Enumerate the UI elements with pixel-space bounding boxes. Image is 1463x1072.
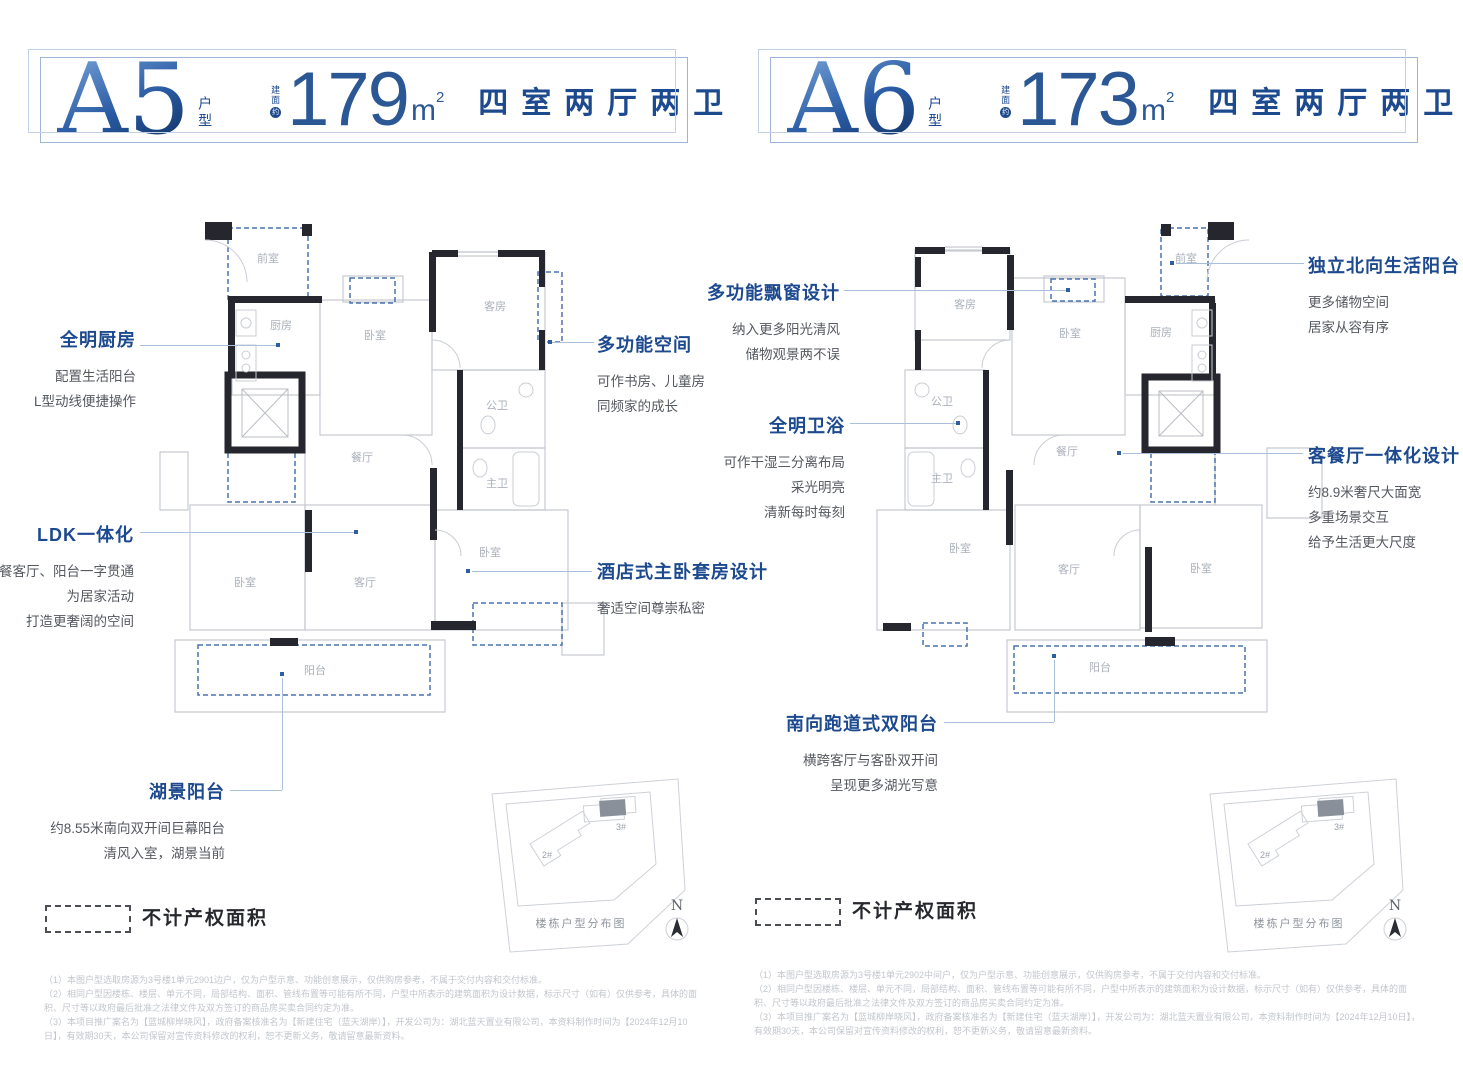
leader-dot — [1117, 451, 1121, 455]
unit-a5-name: A5 — [57, 56, 190, 144]
room-label-bedroom-top: 卧室 — [1059, 326, 1081, 340]
disclaimer-line: （3）本项目推广案名为【蓝城柳岸晓风】，政府备案核准名为【新建住宅（蓝天湖岸）】… — [44, 1015, 710, 1043]
site-map-a5: 2# 3# 楼栋户型分布图 N — [478, 772, 718, 962]
callout-desc: 约8.55米南向双开间巨幕阳台 清风入室，湖景当前 — [50, 816, 225, 866]
leader-line — [140, 532, 354, 533]
area-prefix-text: 建面 — [999, 85, 1012, 105]
area-approx-mark: 约 — [270, 107, 281, 118]
callout-title: 全明卫浴 — [724, 412, 846, 438]
leader-line — [472, 571, 592, 572]
leader-line — [1054, 660, 1055, 722]
callout-title: LDK一体化 — [0, 521, 134, 547]
leader-line — [552, 342, 594, 343]
site-map-caption: 楼栋户型分布图 — [1254, 916, 1345, 930]
room-label-guest: 客房 — [954, 297, 976, 311]
room-label-kitchen: 厨房 — [1150, 326, 1172, 339]
area-unit-sup: 2 — [436, 89, 444, 106]
room-label-balcony: 阳台 — [304, 663, 326, 677]
leader-line — [230, 790, 282, 791]
leader-dot — [548, 340, 552, 344]
leader-dot — [1052, 654, 1056, 658]
area-prefix: 建面 约 — [999, 85, 1012, 118]
area-approx-mark: 约 — [1000, 107, 1011, 118]
building-3-label: 3# — [1334, 822, 1344, 832]
room-label-dining: 餐厅 — [1056, 444, 1078, 458]
site-map-caption: 楼栋户型分布图 — [536, 916, 627, 930]
callout-title: 客餐厅一体化设计 — [1308, 442, 1460, 468]
room-label-guest: 客房 — [484, 299, 506, 313]
callout-desc: 配置生活阳台 L型动线便捷操作 — [34, 364, 136, 414]
leader-line — [1123, 453, 1303, 454]
callout-title: 酒店式主卧套房设计 — [597, 558, 768, 584]
callout-desc: 约8.9米奢尺大面宽 多重场景交互 给予生活更大尺度 — [1308, 480, 1460, 555]
building-2-label: 2# — [1260, 850, 1270, 860]
north-arrow-icon — [1389, 918, 1401, 937]
building-3-label: 3# — [616, 822, 626, 832]
leader-line — [850, 423, 956, 424]
leader-dot — [354, 530, 358, 534]
disclaimer-line: （2）相同户型因楼栋、楼层、单元不同，局部结构、面积、管线布置等可能有所不同，户… — [44, 987, 710, 1015]
callout-desc: 纳入更多阳光清风 储物观景两不误 — [707, 317, 840, 367]
callout-title: 多功能空间 — [597, 331, 705, 357]
unit-a5-type-label: 户型 — [195, 96, 215, 130]
leader-dot — [466, 569, 470, 573]
area-prefix: 建面 约 — [269, 85, 282, 118]
building-3-outline — [583, 796, 636, 822]
callout-desc: 餐客厅、阳台一字贯通 为居家活动 打造更奢阔的空间 — [0, 559, 134, 634]
building-2-outline — [1248, 811, 1314, 866]
site-map-a6: 2# 3# 楼栋户型分布图 N — [1196, 772, 1436, 962]
disclaimer-a5: （1）本图户型选取房源为3号楼1单元2901边户，仅为户型示意、功能创意展示，仅… — [44, 973, 710, 1043]
unit-a5-area: 建面 约 179 m2 — [269, 68, 444, 133]
leader-line — [1176, 263, 1304, 264]
unit-a6-layout-label: 四室两厅两卫 — [1208, 78, 1463, 122]
area-unit: m2 — [411, 89, 444, 128]
legend-dashed-box — [755, 898, 841, 926]
room-label-master-bath: 主卫 — [931, 472, 953, 485]
area-prefix-text: 建面 — [269, 85, 282, 105]
disclaimer-line: （3）本项目推广案名为【蓝城柳岸晓风】，政府备案核准名为【新建住宅（蓝天湖岸）】… — [754, 1010, 1422, 1038]
callout-ldk: LDK一体化 餐客厅、阳台一字贯通 为居家活动 打造更奢阔的空间 — [0, 521, 134, 634]
callout-bathroom: 全明卫浴 可作干湿三分离布局 采光明亮 清新每时每刻 — [724, 412, 846, 525]
callout-desc: 可作干湿三分离布局 采光明亮 清新每时每刻 — [724, 450, 846, 525]
room-label-kitchen: 厨房 — [270, 319, 292, 332]
callout-double-balcony: 南向跑道式双阳台 横跨客厅与客卧双开间 呈现更多湖光写意 — [786, 710, 938, 798]
callout-bay-window: 多功能飘窗设计 纳入更多阳光清风 储物观景两不误 — [707, 279, 840, 367]
unit-a6-header: A6 户型 建面 约 173 m2 四室两厅两卫 — [770, 57, 1418, 143]
leader-dot — [1170, 261, 1174, 265]
callout-desc: 奢适空间尊崇私密 — [597, 596, 768, 621]
leader-dot — [280, 672, 284, 676]
leader-line — [140, 345, 276, 346]
legend-dashed-box — [45, 905, 131, 933]
callout-title: 独立北向生活阳台 — [1308, 252, 1460, 278]
callout-desc: 可作书房、儿童房 同频家的成长 — [597, 369, 705, 419]
disclaimer-line: （2）相同户型因楼栋、楼层、单元不同，局部结构、面积、管线布置等可能有所不同，户… — [754, 982, 1422, 1010]
unit-a5-layout-label: 四室两厅两卫 — [478, 78, 736, 122]
north-letter: N — [671, 898, 683, 914]
callout-north-balcony: 独立北向生活阳台 更多储物空间 居家从容有序 — [1308, 252, 1460, 340]
leader-line — [844, 290, 1066, 291]
legend-label: 不计产权面积 — [852, 896, 978, 923]
legend-label: 不计产权面积 — [142, 903, 268, 930]
callout-title: 南向跑道式双阳台 — [786, 710, 938, 736]
callout-title: 多功能飘窗设计 — [707, 279, 840, 305]
room-label-foyer: 前室 — [257, 251, 279, 265]
room-label-master-bath: 主卫 — [486, 477, 508, 490]
leader-dot — [1066, 288, 1070, 292]
callout-desc: 更多储物空间 居家从容有序 — [1308, 290, 1460, 340]
room-label-bedroom-right: 卧室 — [479, 545, 501, 559]
brochure-page: A5 户型 建面 约 179 m2 四室两厅两卫 A6 户型 建面 约 173 … — [0, 0, 1463, 1072]
room-label-public-bath: 公卫 — [486, 400, 508, 412]
room-label-bedroom-left: 卧室 — [234, 575, 256, 589]
callout-desc: 横跨客厅与客卧双开间 呈现更多湖光写意 — [786, 748, 938, 798]
unit-a6-name: A6 — [787, 56, 920, 144]
room-label-balcony: 阳台 — [1089, 660, 1111, 674]
floor-plan-a5: 前室 厨房 卧室 客房 公卫 餐厅 主卫 卧室 客厅 卧室 阳台 — [158, 200, 624, 715]
building-2-label: 2# — [542, 850, 552, 860]
callout-master-suite: 酒店式主卧套房设计 奢适空间尊崇私密 — [597, 558, 768, 621]
building-3-outline — [1301, 796, 1354, 822]
disclaimer-a6: （1）本图户型选取房源为3号楼1单元2902中间户，仅为户型示意、功能创意展示，… — [754, 968, 1422, 1038]
unit-a5-header: A5 户型 建面 约 179 m2 四室两厅两卫 — [40, 57, 688, 143]
leader-line — [944, 722, 1054, 723]
disclaimer-line: （1）本图户型选取房源为3号楼1单元2901边户，仅为户型示意、功能创意展示，仅… — [44, 973, 710, 987]
callout-title: 全明厨房 — [34, 326, 136, 352]
room-label-dining: 餐厅 — [351, 450, 373, 464]
callout-kitchen: 全明厨房 配置生活阳台 L型动线便捷操作 — [34, 326, 136, 414]
leader-dot — [276, 343, 280, 347]
unit-a6-area: 建面 约 173 m2 — [999, 68, 1174, 133]
room-label-public-bath: 公卫 — [931, 396, 953, 408]
unit-a6-type-label: 户型 — [925, 96, 945, 130]
disclaimer-line: （1）本图户型选取房源为3号楼1单元2902中间户，仅为户型示意、功能创意展示，… — [754, 968, 1422, 982]
building-2-outline — [530, 811, 596, 866]
room-label-living: 客厅 — [1058, 562, 1080, 576]
north-letter: N — [1389, 898, 1401, 914]
floor-plan-a6: 客房 卧室 前室 厨房 公卫 餐厅 主卫 卧室 客厅 卧室 阳台 — [872, 200, 1338, 715]
area-value: 173 — [1017, 68, 1138, 133]
area-value: 179 — [287, 68, 408, 133]
callout-multifunction: 多功能空间 可作书房、儿童房 同频家的成长 — [597, 331, 705, 419]
room-label-bedroom-top: 卧室 — [364, 328, 386, 342]
leader-line — [282, 678, 283, 790]
callout-title: 湖景阳台 — [50, 778, 225, 804]
room-label-bedroom-left: 卧室 — [949, 541, 971, 555]
leader-dot — [956, 421, 960, 425]
room-label-bedroom-right: 卧室 — [1190, 561, 1212, 575]
callout-lake-balcony: 湖景阳台 约8.55米南向双开间巨幕阳台 清风入室，湖景当前 — [50, 778, 225, 866]
area-unit-sup: 2 — [1166, 89, 1174, 106]
room-label-living: 客厅 — [354, 575, 376, 589]
north-arrow-icon — [671, 918, 683, 937]
area-unit: m2 — [1141, 89, 1174, 128]
callout-living-dining: 客餐厅一体化设计 约8.9米奢尺大面宽 多重场景交互 给予生活更大尺度 — [1308, 442, 1460, 555]
